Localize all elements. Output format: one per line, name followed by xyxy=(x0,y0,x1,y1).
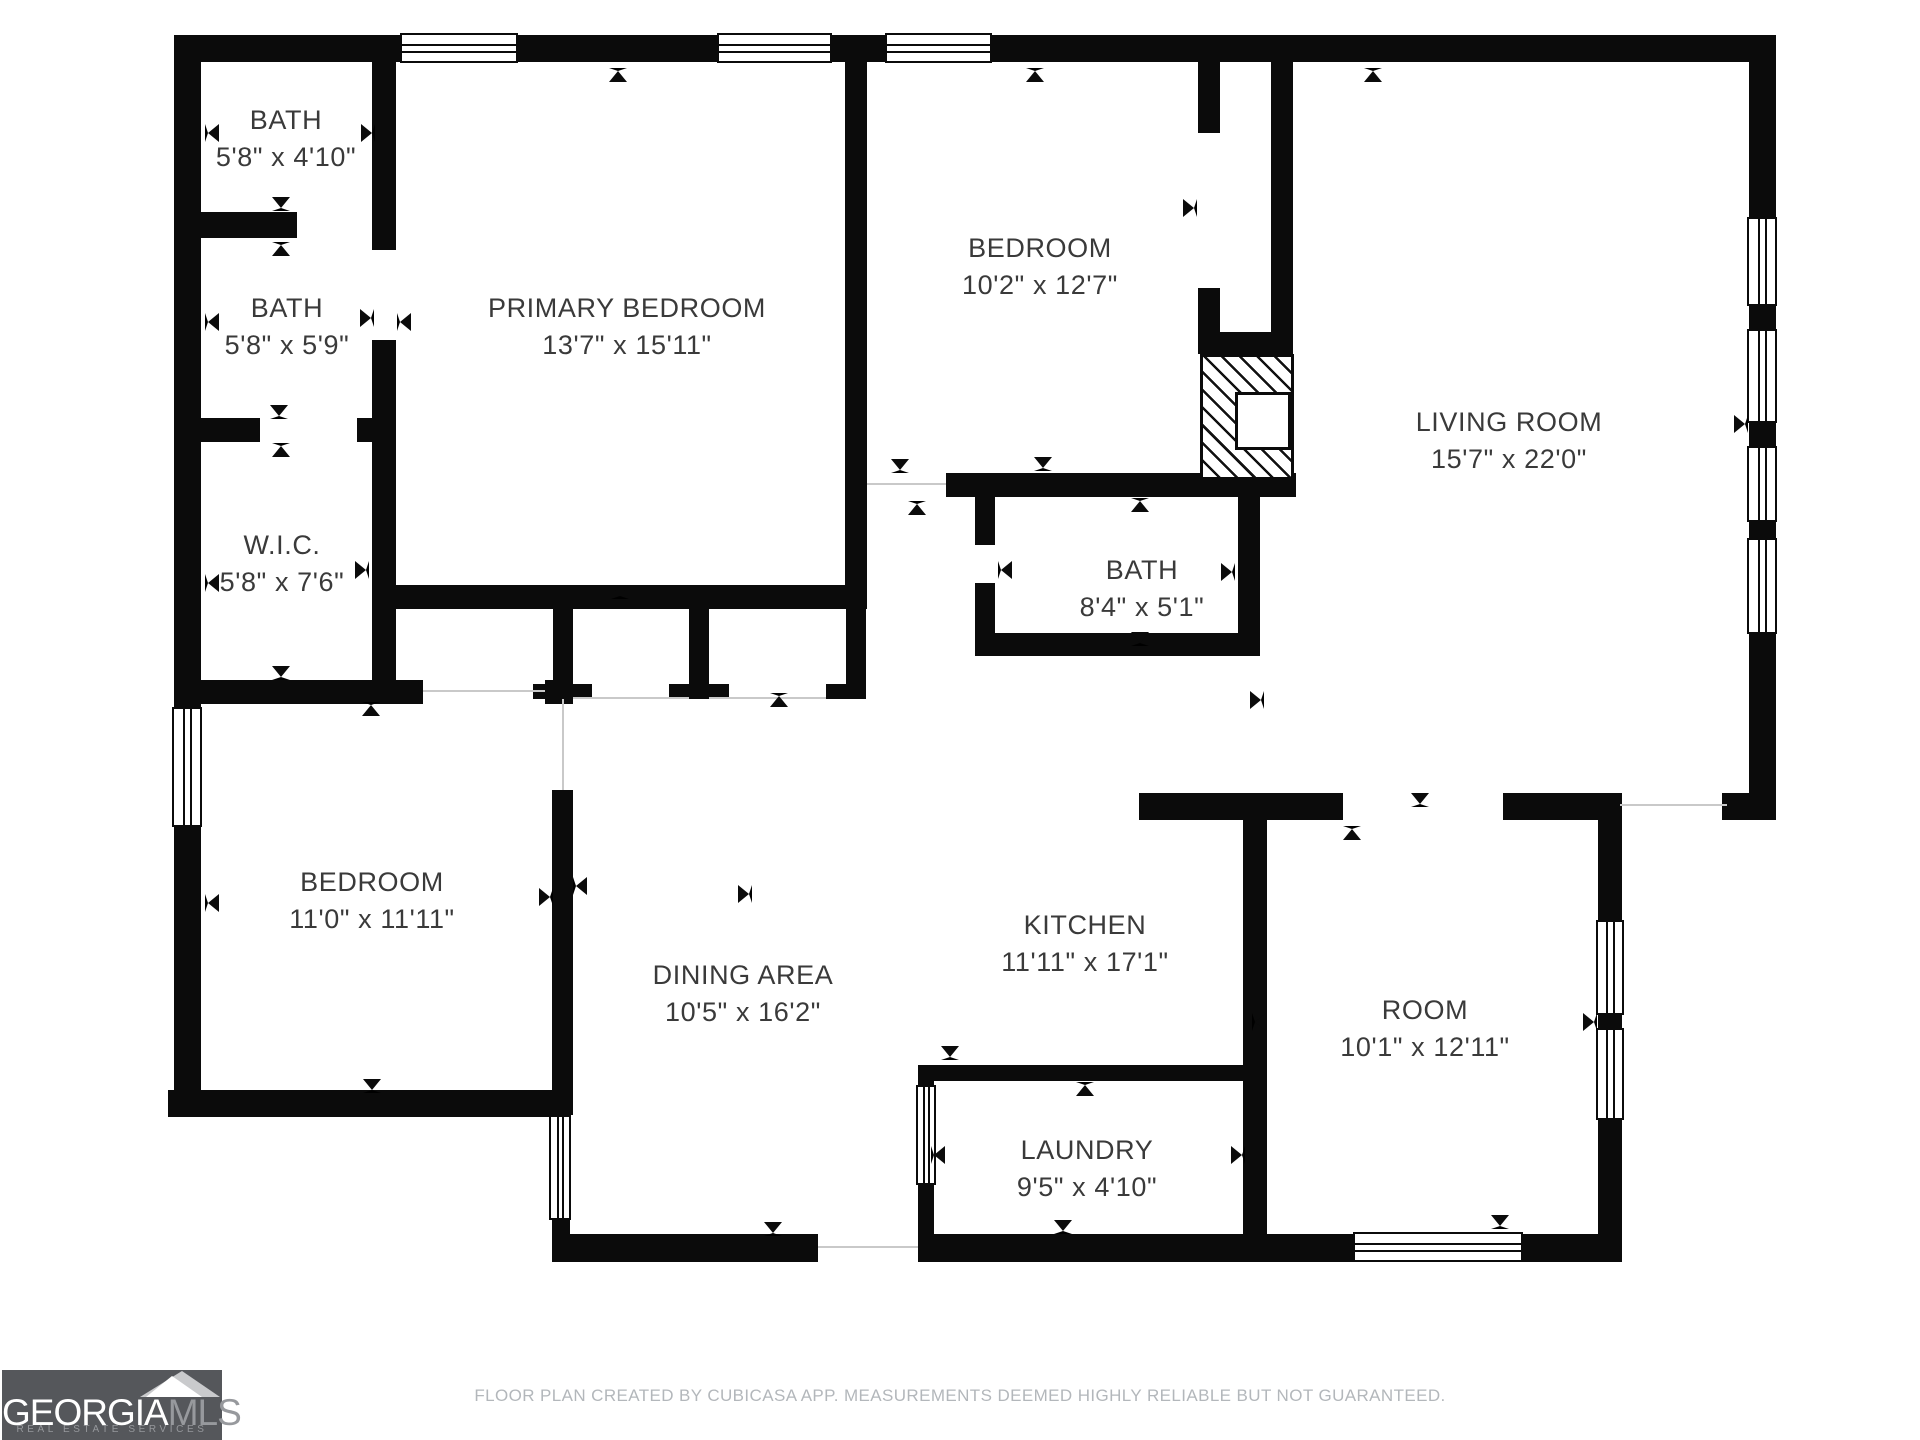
wall xyxy=(174,35,201,1117)
room-dimensions: 10'5" x 16'2" xyxy=(653,994,834,1031)
wall xyxy=(174,212,297,238)
room-name: PRIMARY BEDROOM xyxy=(488,290,766,327)
wall xyxy=(1598,1015,1622,1028)
wall xyxy=(1198,332,1293,354)
wall xyxy=(372,35,396,250)
room-label: PRIMARY BEDROOM13'7" x 15'11" xyxy=(488,290,766,364)
room-dimensions: 5'8" x 7'6" xyxy=(220,564,345,601)
door-tick-icon xyxy=(891,459,909,473)
room-name: BATH xyxy=(1080,552,1205,589)
window-icon xyxy=(916,1085,936,1185)
door-tick-icon xyxy=(611,585,629,599)
room-name: BEDROOM xyxy=(289,864,454,901)
window-icon xyxy=(1596,920,1624,1015)
room-label: DINING AREA10'5" x 16'2" xyxy=(653,957,834,1031)
room-name: BEDROOM xyxy=(962,230,1118,267)
room-dimensions: 13'7" x 15'11" xyxy=(488,327,766,364)
window-icon xyxy=(549,1115,571,1220)
floor-plan-page: BATH5'8" x 4'10"BATH5'8" x 5'9"W.I.C.5'8… xyxy=(0,0,1920,1440)
opening-line xyxy=(867,483,946,485)
room-name: LAUNDRY xyxy=(1017,1132,1157,1169)
room-dimensions: 15'7" x 22'0" xyxy=(1416,441,1603,478)
opening-line xyxy=(423,690,545,692)
window-mullion xyxy=(402,44,516,46)
room-label: BATH5'8" x 5'9" xyxy=(225,290,350,364)
room-label: ROOM10'1" x 12'11" xyxy=(1340,992,1510,1066)
door-tick-icon xyxy=(1183,199,1197,217)
door-tick-icon xyxy=(205,894,219,912)
window-mullion xyxy=(1613,922,1615,1013)
door-tick-icon xyxy=(908,501,926,515)
room-name: DINING AREA xyxy=(653,957,834,994)
window-icon xyxy=(1747,217,1777,306)
room-label: BATH8'4" x 5'1" xyxy=(1080,552,1205,626)
logo-tagline: REAL ESTATE SERVICES xyxy=(2,1424,222,1435)
window-mullion xyxy=(719,51,830,53)
opening-line xyxy=(573,697,689,699)
window-mullion xyxy=(887,44,990,46)
opening-line xyxy=(562,699,564,790)
window-mullion xyxy=(1606,922,1608,1013)
room-dimensions: 10'1" x 12'11" xyxy=(1340,1029,1510,1066)
door-tick-icon xyxy=(1034,457,1052,471)
wall xyxy=(1749,35,1776,820)
room-label: LAUNDRY9'5" x 4'10" xyxy=(1017,1132,1157,1206)
door-tick-icon xyxy=(397,313,411,331)
window-mullion xyxy=(1758,219,1760,304)
door-tick-icon xyxy=(1343,826,1361,840)
window-mullion xyxy=(183,709,185,825)
door-tick-icon xyxy=(1734,415,1748,433)
window-icon xyxy=(172,707,202,827)
room-dimensions: 9'5" x 4'10" xyxy=(1017,1169,1157,1206)
door-tick-icon xyxy=(272,443,290,457)
door-tick-icon xyxy=(272,666,290,680)
window-mullion xyxy=(190,709,192,825)
wall xyxy=(553,609,573,686)
wall xyxy=(845,62,867,609)
wall xyxy=(552,1234,818,1262)
opening-line xyxy=(818,1246,918,1248)
door-tick-icon xyxy=(1252,1013,1266,1031)
room-dimensions: 11'11" x 17'1" xyxy=(1001,944,1169,981)
room-label: BEDROOM10'2" x 12'7" xyxy=(962,230,1118,304)
window-mullion xyxy=(1758,540,1760,632)
door-tick-icon xyxy=(539,888,553,906)
footer-disclaimer: FLOOR PLAN CREATED BY CUBICASA APP. MEAS… xyxy=(0,1386,1920,1406)
opening-line xyxy=(709,697,826,699)
room-dimensions: 11'0" x 11'11" xyxy=(289,901,454,938)
door-tick-icon xyxy=(1231,1146,1245,1164)
door-tick-icon xyxy=(1131,498,1149,512)
window-mullion xyxy=(887,51,990,53)
door-tick-icon xyxy=(1054,1220,1072,1234)
room-label: LIVING ROOM15'7" x 22'0" xyxy=(1416,404,1603,478)
door-tick-icon xyxy=(270,405,288,419)
room-name: ROOM xyxy=(1340,992,1510,1029)
door-tick-icon xyxy=(355,561,369,579)
door-tick-icon xyxy=(738,885,752,903)
door-tick-icon xyxy=(361,124,375,142)
window-icon xyxy=(1747,329,1777,423)
room-dimensions: 8'4" x 5'1" xyxy=(1080,589,1205,626)
window-icon xyxy=(1596,1028,1624,1120)
door-tick-icon xyxy=(1131,632,1149,646)
window-mullion xyxy=(1355,1250,1521,1252)
door-tick-icon xyxy=(272,242,290,256)
window-mullion xyxy=(1765,540,1767,632)
door-tick-icon xyxy=(998,561,1012,579)
window-mullion xyxy=(1765,219,1767,304)
door-tick-icon xyxy=(360,309,374,327)
door-tick-icon xyxy=(941,1046,959,1060)
door-tick-icon xyxy=(1221,563,1235,581)
door-tick-icon xyxy=(770,693,788,707)
door-tick-icon xyxy=(1250,691,1264,709)
room-dimensions: 5'8" x 4'10" xyxy=(216,139,356,176)
wall xyxy=(975,633,1260,656)
room-label: W.I.C.5'8" x 7'6" xyxy=(220,527,345,601)
window-mullion xyxy=(1758,448,1760,520)
wall xyxy=(168,1090,568,1117)
room-label: BATH5'8" x 4'10" xyxy=(216,102,356,176)
room-dimensions: 5'8" x 5'9" xyxy=(225,327,350,364)
door-tick-icon xyxy=(609,68,627,82)
wall xyxy=(1198,62,1220,133)
room-name: LIVING ROOM xyxy=(1416,404,1603,441)
window-mullion xyxy=(1613,1030,1615,1118)
door-tick-icon xyxy=(205,574,219,592)
wall xyxy=(1238,480,1260,656)
door-tick-icon xyxy=(1026,68,1044,82)
door-tick-icon xyxy=(764,1222,782,1236)
door-tick-icon xyxy=(272,197,290,211)
door-tick-icon xyxy=(1411,793,1429,807)
door-tick-icon xyxy=(1076,1082,1094,1096)
window-mullion xyxy=(1606,1030,1608,1118)
window-mullion xyxy=(1765,448,1767,520)
room-label: BEDROOM11'0" x 11'11" xyxy=(289,864,454,938)
wall xyxy=(174,680,423,704)
room-name: W.I.C. xyxy=(220,527,345,564)
window-mullion xyxy=(1765,331,1767,421)
window-mullion xyxy=(1355,1243,1521,1245)
window-mullion xyxy=(402,51,516,53)
room-name: BATH xyxy=(225,290,350,327)
wall xyxy=(372,340,396,680)
door-tick-icon xyxy=(363,1079,381,1093)
door-tick-icon xyxy=(1491,1215,1509,1229)
door-tick-icon xyxy=(1583,1013,1597,1031)
opening-line xyxy=(1620,804,1727,806)
wall xyxy=(357,418,396,442)
window-mullion xyxy=(1758,331,1760,421)
door-tick-icon xyxy=(573,877,587,895)
wall xyxy=(1598,793,1622,920)
room-name: BATH xyxy=(216,102,356,139)
wall xyxy=(1271,62,1293,332)
wall xyxy=(918,1065,1243,1081)
room-label: KITCHEN11'11" x 17'1" xyxy=(1001,907,1169,981)
wall xyxy=(1722,793,1776,820)
wall xyxy=(1139,793,1343,820)
window-icon xyxy=(717,33,832,63)
window-icon xyxy=(885,33,992,63)
window-icon xyxy=(1747,538,1777,634)
window-mullion xyxy=(928,1087,930,1183)
wall xyxy=(826,684,866,699)
window-mullion xyxy=(923,1087,925,1183)
floor-plan-canvas: BATH5'8" x 4'10"BATH5'8" x 5'9"W.I.C.5'8… xyxy=(0,0,1920,1440)
window-icon xyxy=(400,33,518,63)
georgia-mls-logo: GEORGIAMLS REAL ESTATE SERVICES xyxy=(2,1370,222,1440)
room-dimensions: 10'2" x 12'7" xyxy=(962,267,1118,304)
window-mullion xyxy=(562,1117,564,1218)
wall xyxy=(846,609,866,686)
window-mullion xyxy=(557,1117,559,1218)
room-name: KITCHEN xyxy=(1001,907,1169,944)
door-tick-icon xyxy=(931,1146,945,1164)
wall xyxy=(975,497,995,545)
window-mullion xyxy=(719,44,830,46)
door-tick-icon xyxy=(205,313,219,331)
door-tick-icon xyxy=(362,702,380,716)
window-icon xyxy=(1353,1232,1523,1262)
door-tick-icon xyxy=(1364,68,1382,82)
wall xyxy=(552,790,573,1115)
fireplace-inset xyxy=(1235,392,1291,450)
wall xyxy=(689,609,709,686)
window-icon xyxy=(1747,446,1777,522)
wall xyxy=(174,418,260,442)
